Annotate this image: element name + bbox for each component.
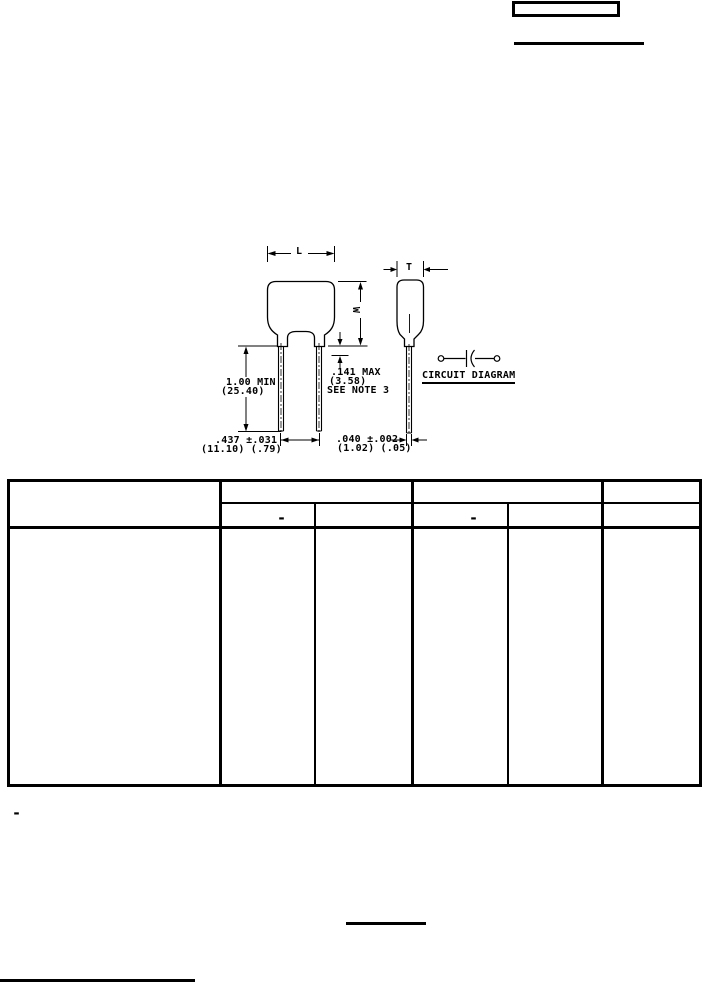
center-underline	[346, 922, 426, 925]
table-subcol-divider-2	[507, 502, 509, 787]
table-subheader-dash-col2: -	[277, 513, 286, 524]
terminal-right	[494, 356, 500, 362]
front-leads	[279, 343, 322, 433]
side-lead	[407, 344, 412, 435]
circuit-diagram-symbol	[438, 350, 500, 367]
dim-label-T: T	[406, 263, 412, 273]
table-subcol-divider-1	[314, 502, 316, 787]
dim-label-L: L	[296, 247, 302, 257]
dim-lead-spacing	[281, 433, 320, 446]
terminal-left	[438, 356, 444, 362]
circuit-diagram-label: CIRCUIT DIAGRAM	[422, 371, 515, 384]
lead-length-metric: (25.40)	[221, 387, 265, 397]
standoff-note: SEE NOTE 3	[327, 386, 389, 396]
side-body-outline	[397, 280, 424, 347]
front-body-outline	[268, 282, 335, 347]
table-subheader-dash-col4: -	[469, 513, 478, 524]
footnote-marker-dash: -	[12, 808, 21, 819]
table-header-bottom-line	[7, 526, 702, 529]
document-page: L W T 1.00 MIN (25.40) .141 MAX (3.58) S…	[0, 0, 703, 985]
table-subheader-line	[219, 502, 702, 504]
dim-T	[384, 261, 449, 277]
dim-label-W: W	[350, 307, 360, 313]
capacitor-front-view	[238, 246, 368, 446]
capacitor-side-view	[384, 261, 449, 446]
footnote-separator-rule	[0, 979, 195, 982]
lead-diameter-metric: (1.02) (.05)	[337, 444, 412, 454]
dim-standoff	[332, 332, 349, 369]
lead-spacing-metric: (11.10) (.79)	[201, 445, 282, 455]
capacitor-plate-curved	[471, 350, 475, 367]
